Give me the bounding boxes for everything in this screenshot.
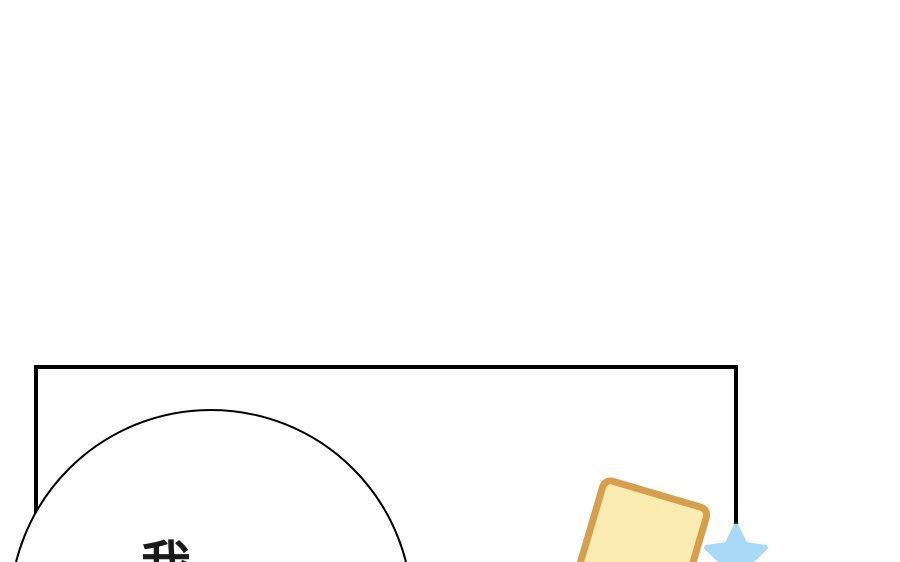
speech-text: 我 <box>141 540 191 562</box>
comic-page: 我 <box>0 0 900 562</box>
